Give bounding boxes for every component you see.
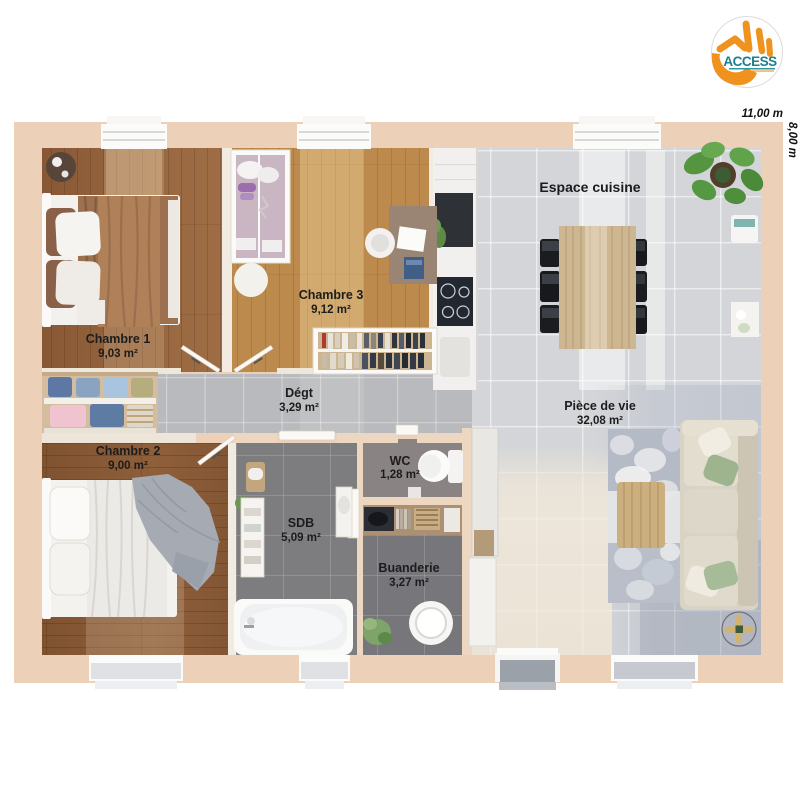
svg-text:ACCESS: ACCESS	[723, 54, 777, 69]
svg-text:11,00 m: 11,00 m	[742, 108, 783, 120]
svg-text:5,09 m²: 5,09 m²	[281, 532, 321, 544]
svg-text:9,00 m²: 9,00 m²	[108, 460, 148, 472]
svg-text:Chambre 3: Chambre 3	[299, 288, 364, 302]
svg-text:9,12 m²: 9,12 m²	[311, 304, 351, 316]
svg-text:8,00 m: 8,00 m	[786, 122, 798, 158]
svg-text:3,27 m²: 3,27 m²	[389, 577, 429, 589]
svg-text:SDB: SDB	[288, 516, 314, 530]
svg-text:9,03 m²: 9,03 m²	[98, 348, 138, 360]
svg-text:1,28 m²: 1,28 m²	[380, 469, 420, 481]
svg-text:WC: WC	[390, 454, 411, 468]
svg-text:Chambre 1: Chambre 1	[86, 332, 151, 346]
svg-text:Pièce de vie: Pièce de vie	[564, 399, 636, 413]
svg-text:Chambre 2: Chambre 2	[96, 444, 161, 458]
svg-text:3,29 m²: 3,29 m²	[279, 402, 319, 414]
svg-text:Espace cuisine: Espace cuisine	[539, 179, 640, 195]
svg-text:Buanderie: Buanderie	[378, 561, 439, 575]
svg-text:Dégt: Dégt	[285, 386, 314, 400]
svg-text:32,08 m²: 32,08 m²	[577, 415, 623, 427]
